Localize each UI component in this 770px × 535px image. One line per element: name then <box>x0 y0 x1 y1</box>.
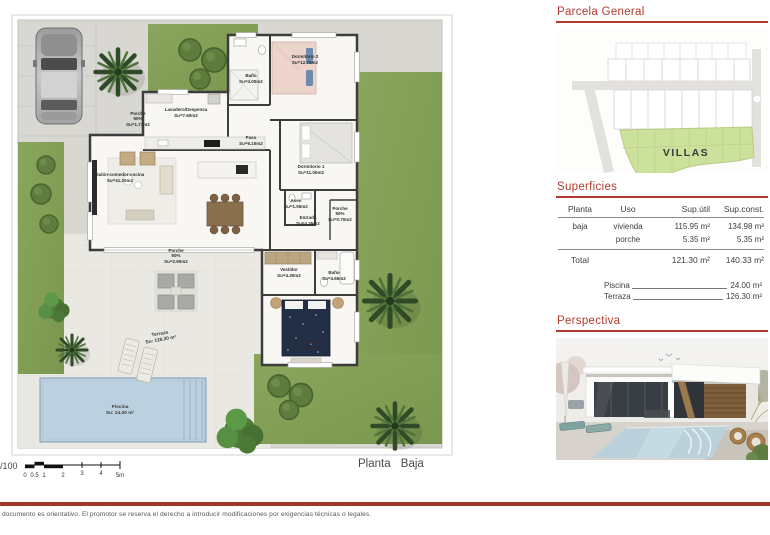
parcela-section: Parcela General <box>556 6 768 173</box>
floor-plan-drawing: Dormitorio 2 Su=12.75m2 Baño Su=4.00m2 L… <box>8 12 456 458</box>
svg-text:Su=2.90m2: Su=2.90m2 <box>164 259 188 264</box>
perspectiva-rule <box>556 330 768 332</box>
plan-name: Planta Baja <box>358 458 424 470</box>
room-label-bano-suite: Baño <box>328 270 340 275</box>
villas-label: VILLAS <box>663 147 709 159</box>
svg-text:Su=11.00m2: Su=11.00m2 <box>298 170 324 175</box>
room-label-paso: Paso <box>246 135 257 140</box>
svg-text:Su=4.35m2: Su=4.35m2 <box>296 221 320 226</box>
room-label-aseo: Aseo <box>290 198 301 203</box>
svg-text:Su=0.70m2: Su=0.70m2 <box>328 217 352 222</box>
bedroom1-furniture <box>300 123 352 163</box>
car <box>33 28 85 124</box>
svg-text:0.5: 0.5 <box>30 473 39 479</box>
svg-text:Su=15.60m2: Su=15.60m2 <box>295 346 322 351</box>
perspectiva-title: Perspectiva <box>557 315 768 327</box>
svg-text:Su=4.30m2: Su=4.30m2 <box>277 273 301 278</box>
plan-sheet: Dormitorio 2 Su=12.75m2 Baño Su=4.00m2 L… <box>0 0 770 535</box>
svg-text:3: 3 <box>80 471 84 477</box>
table-row: baja vivienda 115.95 m² 134.98 m² <box>558 218 764 231</box>
disclaimer-text: documento es orientativo. El promotor se… <box>2 511 371 518</box>
plots-row2 <box>614 90 752 129</box>
superficies-section: Superficies Planta Uso Sup.útil Sup.cons… <box>556 181 768 301</box>
superficies-title: Superficies <box>557 181 768 193</box>
svg-text:1: 1 <box>42 473 46 479</box>
room-label-dormitorio2: Dormitorio 2 <box>292 54 319 59</box>
extra-terraza: Terraza 126.30 m² <box>604 292 762 301</box>
superficies-rule <box>556 196 768 198</box>
bedroom2-furniture <box>272 42 316 94</box>
room-label-salon: Salón-comedor-cocina <box>96 172 145 177</box>
info-panel: Parcela General <box>556 6 768 460</box>
svg-text:Su=7.60m2: Su=7.60m2 <box>174 113 198 118</box>
svg-text:Su=1.55m2: Su=1.55m2 <box>284 204 308 209</box>
table-total-row: Total 121.30 m² 140.33 m² <box>558 250 764 265</box>
villa-building <box>583 364 760 418</box>
pool <box>40 378 206 442</box>
parcela-map: VILLAS <box>556 29 768 173</box>
svg-text:Su: 24.00 m²: Su: 24.00 m² <box>106 410 135 416</box>
perspectiva-section: Perspectiva <box>556 315 768 460</box>
table-row: porche 5.35 m² 5.35 m² <box>558 231 764 244</box>
svg-text:50%: 50% <box>133 116 142 121</box>
svg-text:Su=6.15m2: Su=6.15m2 <box>239 141 263 146</box>
scale-bar: 0 0.5 1 2 3 4 5m <box>22 458 127 482</box>
room-label-entrada: Entrada <box>300 215 317 220</box>
svg-text:0: 0 <box>23 473 27 479</box>
room-label-lavadero: Lavadero/Despensa <box>165 107 208 112</box>
svg-text:4: 4 <box>99 471 103 477</box>
room-label-dormitorio1: Dormitorio 1 <box>298 164 325 169</box>
plots-upper <box>616 43 746 59</box>
room-label-vestidor: Vestidor <box>280 267 298 272</box>
table-header: Planta Uso Sup.útil Sup.const. <box>558 204 764 218</box>
plots-row1 <box>608 59 750 81</box>
parcela-rule <box>556 21 768 23</box>
svg-text:2: 2 <box>61 473 65 479</box>
svg-text:Su=1.73m2: Su=1.73m2 <box>126 122 150 127</box>
svg-text:Su=12.75m2: Su=12.75m2 <box>292 60 319 65</box>
svg-text:50%: 50% <box>335 211 344 216</box>
parcela-title: Parcela General <box>557 6 768 18</box>
superficies-table: Planta Uso Sup.útil Sup.const. baja vivi… <box>558 204 764 265</box>
extras-list: Piscina 24.00 m² Terraza 126.30 m² <box>604 281 762 301</box>
floor-plan: Dormitorio 2 Su=12.75m2 Baño Su=4.00m2 L… <box>8 12 456 458</box>
scale-ratio: 1/100 <box>0 461 18 471</box>
room-label-bano-top: Baño <box>245 73 257 78</box>
svg-text:Su=4.65m2: Su=4.65m2 <box>322 276 346 281</box>
perspective-render <box>556 338 768 460</box>
svg-text:Su=41.20m2: Su=41.20m2 <box>107 178 134 183</box>
svg-text:50%: 50% <box>171 253 180 258</box>
svg-text:5m: 5m <box>116 473 124 479</box>
svg-text:Su=4.00m2: Su=4.00m2 <box>239 79 263 84</box>
room-label-dormitorio3: Dormitorio 3 <box>295 340 322 345</box>
footer-divider <box>0 502 770 506</box>
extra-piscina: Piscina 24.00 m² <box>604 281 762 290</box>
porch-lounge-set <box>154 270 198 312</box>
room-label-piscina: Piscina <box>112 404 129 410</box>
